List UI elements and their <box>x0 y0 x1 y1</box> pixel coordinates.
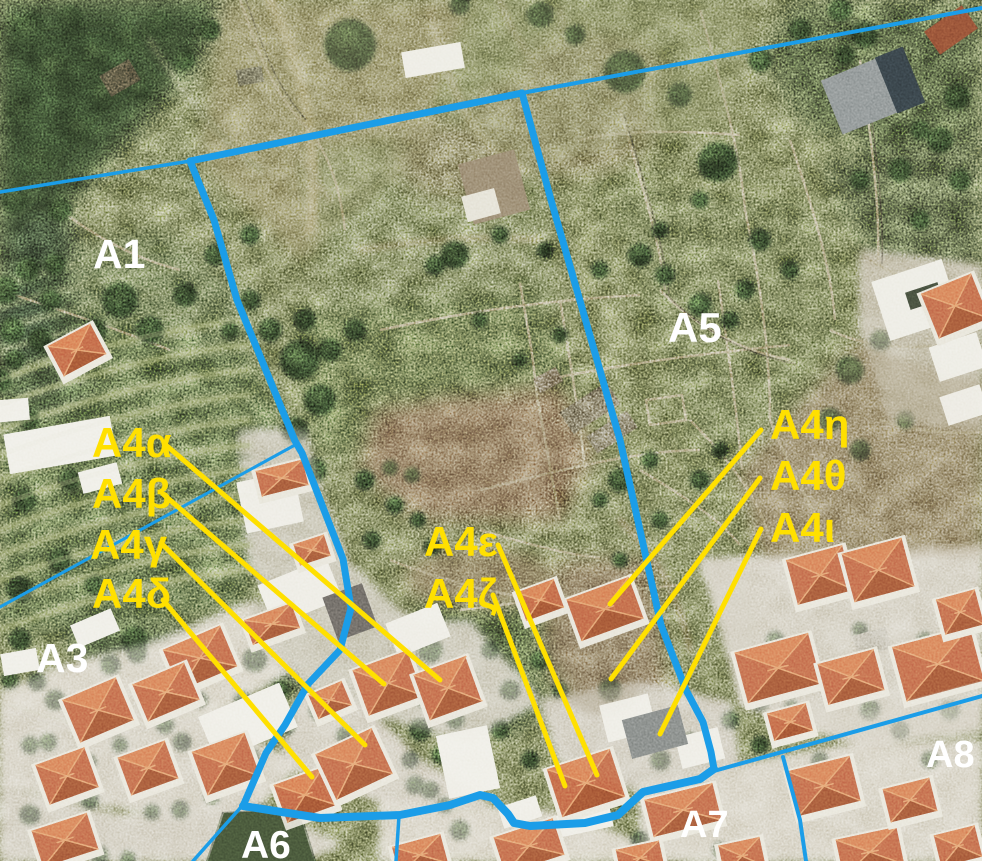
svg-text:A4β: A4β <box>92 470 171 517</box>
svg-text:A5: A5 <box>668 304 722 351</box>
svg-text:A4θ: A4θ <box>770 452 846 499</box>
svg-text:A4η: A4η <box>770 401 849 448</box>
svg-text:A4ε: A4ε <box>424 518 498 565</box>
svg-text:A4ζ: A4ζ <box>424 570 497 617</box>
svg-text:A6: A6 <box>241 824 291 861</box>
svg-text:A4α: A4α <box>92 419 172 466</box>
svg-text:A3: A3 <box>36 635 88 681</box>
svg-text:A4γ: A4γ <box>90 521 168 568</box>
svg-text:A1: A1 <box>93 231 145 277</box>
svg-text:A8: A8 <box>926 734 975 776</box>
svg-text:A7: A7 <box>680 804 729 846</box>
svg-text:A4ι: A4ι <box>770 504 835 551</box>
svg-text:A4δ: A4δ <box>92 570 171 617</box>
